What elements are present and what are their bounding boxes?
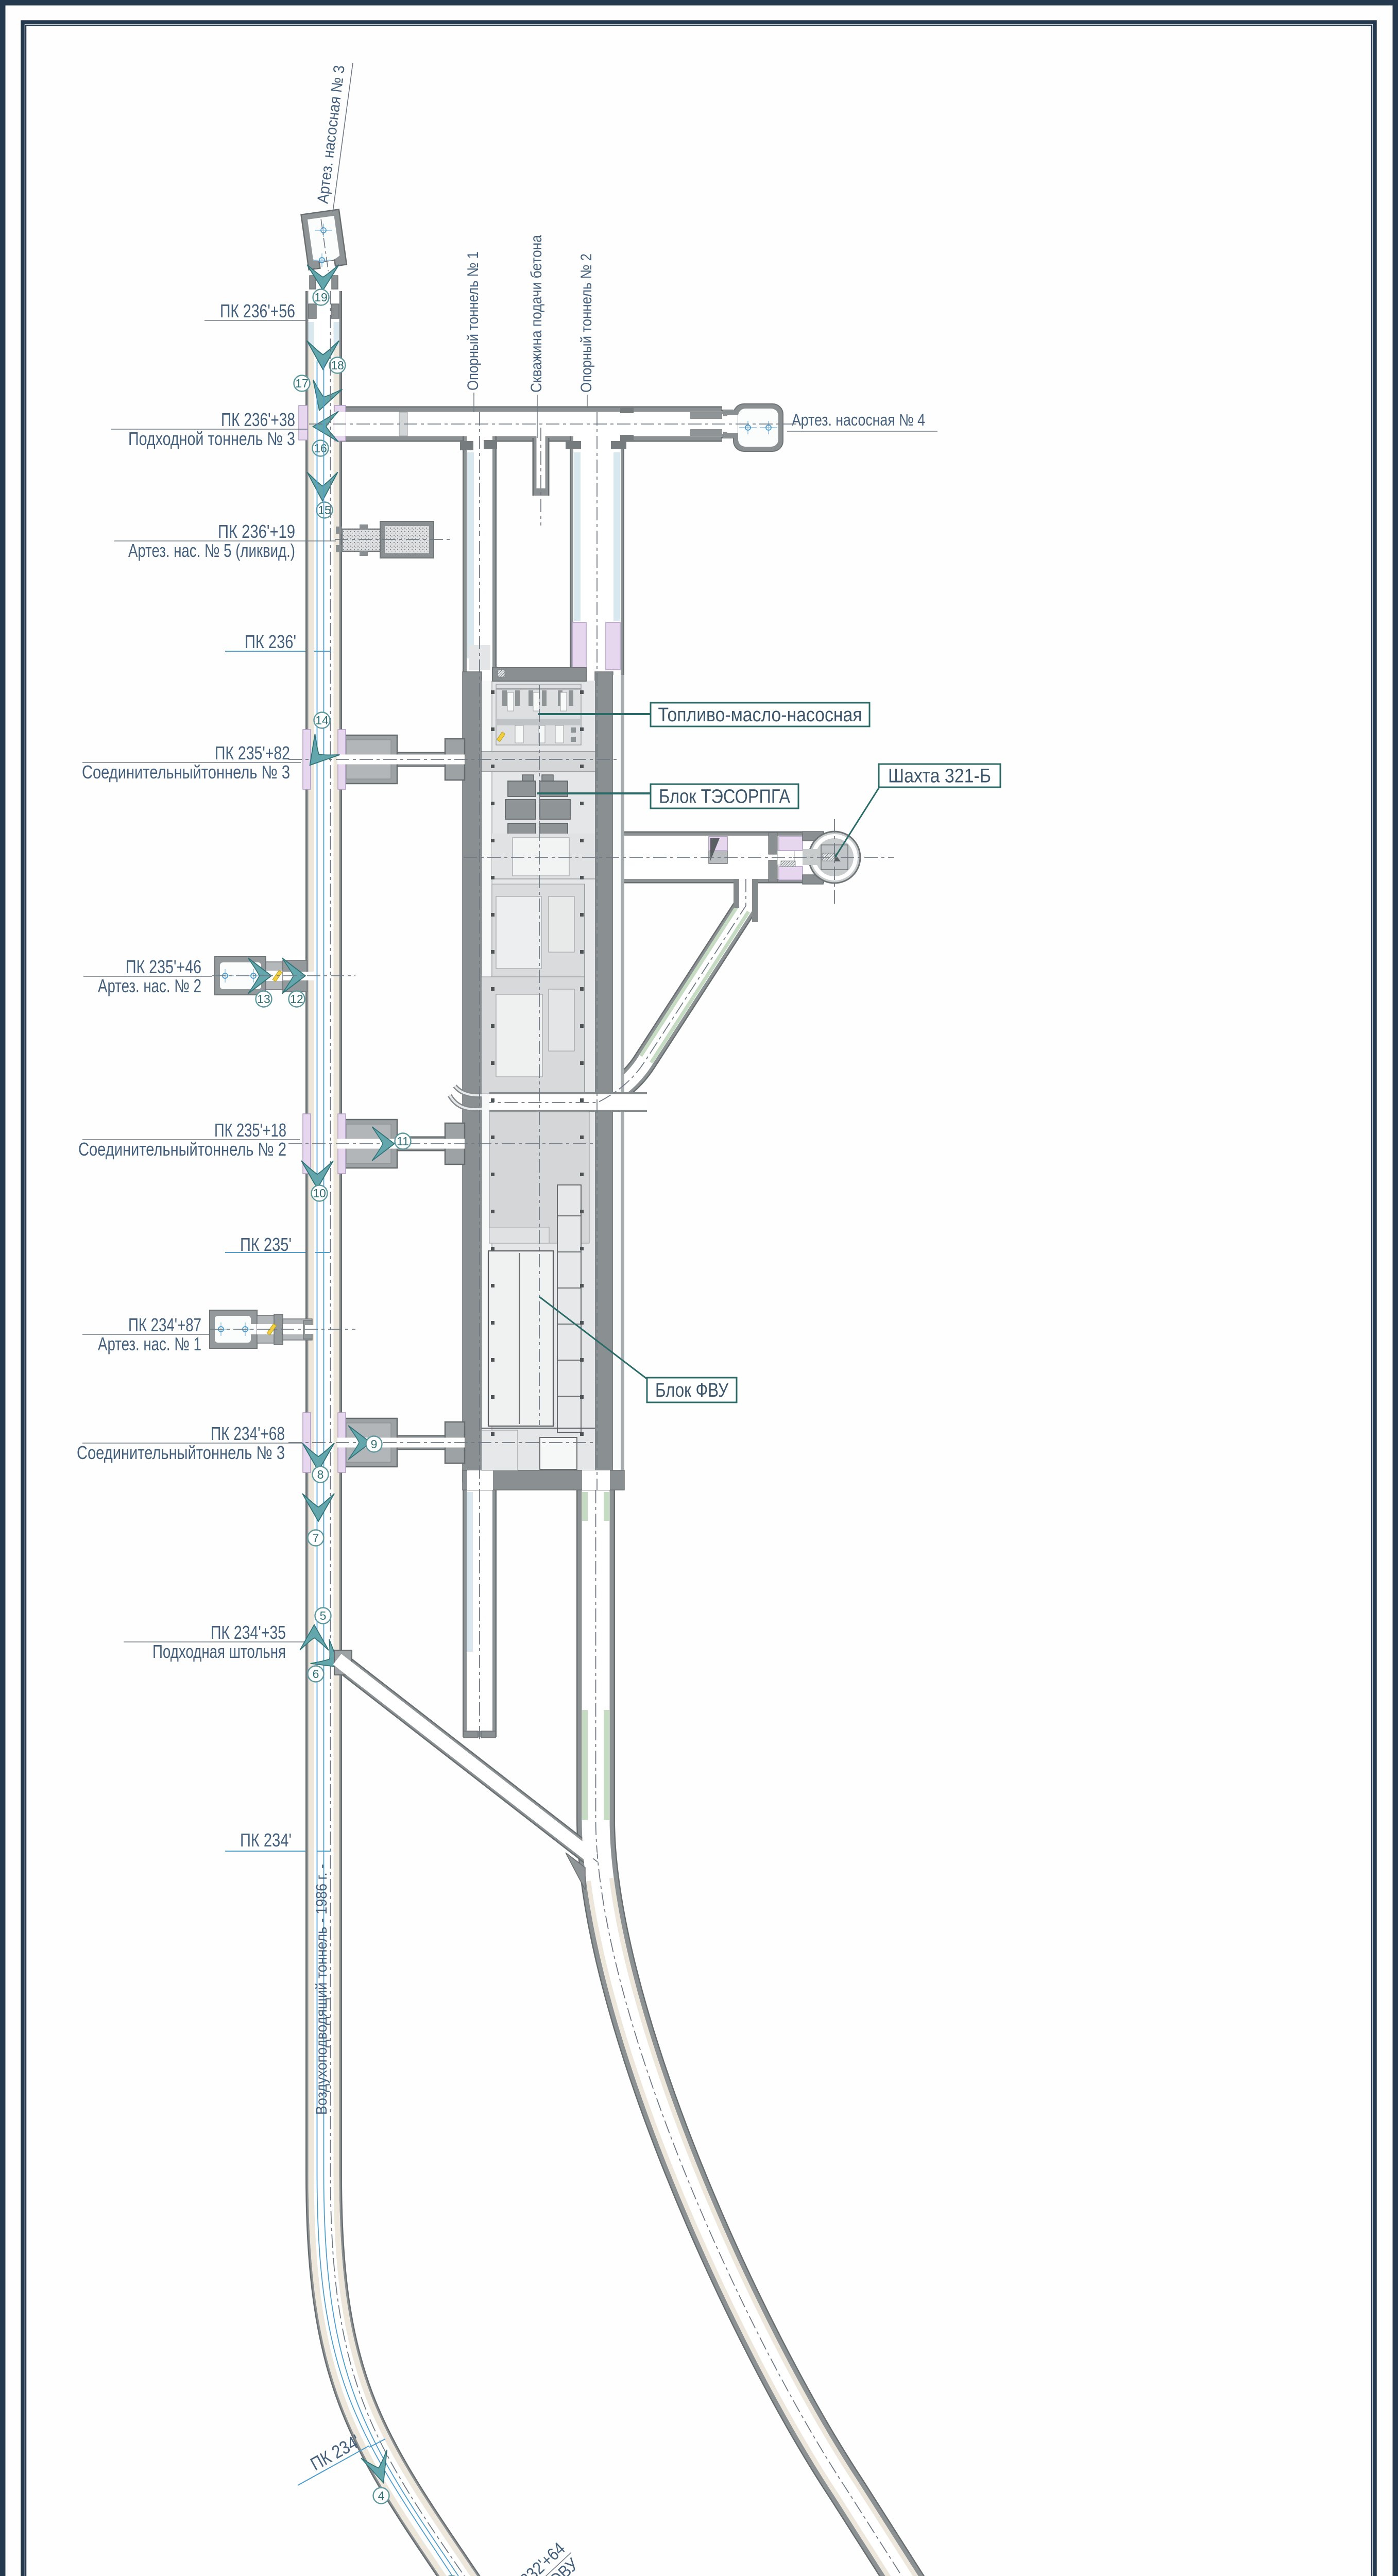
svg-text:7: 7 — [313, 1531, 319, 1545]
svg-text:ПК 234'+68: ПК 234'+68 — [211, 1423, 285, 1444]
svg-text:ПК 235': ПК 235' — [240, 1234, 292, 1255]
svg-text:14: 14 — [315, 714, 329, 727]
svg-text:Воздухоподводящий тоннель - 19: Воздухоподводящий тоннель - 1986 г. - — [313, 1864, 330, 2115]
svg-text:Скважина подачи бетона: Скважина подачи бетона — [528, 235, 545, 393]
svg-text:Артез. насосная № 4: Артез. насосная № 4 — [792, 411, 925, 429]
svg-text:ПК 234'+87: ПК 234'+87 — [128, 1314, 201, 1335]
svg-text:Опорный тоннель № 2: Опорный тоннель № 2 — [578, 253, 595, 393]
svg-text:Артез. нас. № 1: Артез. нас. № 1 — [98, 1333, 201, 1354]
svg-text:Опорный тоннель № 1: Опорный тоннель № 1 — [465, 251, 482, 391]
svg-text:Блок ФВУ: Блок ФВУ — [655, 1380, 729, 1401]
svg-text:18: 18 — [331, 359, 344, 372]
svg-text:ПК 236'+38: ПК 236'+38 — [221, 409, 295, 430]
svg-text:Соединительныйтоннель № 3: Соединительныйтоннель № 3 — [82, 761, 290, 783]
svg-text:Топливо-масло-насосная: Топливо-масло-насосная — [658, 704, 862, 726]
svg-text:16: 16 — [314, 442, 327, 455]
svg-text:13: 13 — [257, 992, 270, 1006]
svg-text:19: 19 — [314, 291, 328, 304]
svg-text:ПК 235'+18: ПК 235'+18 — [214, 1120, 286, 1141]
svg-text:Шахта 321-Б: Шахта 321-Б — [888, 766, 991, 787]
svg-text:10: 10 — [313, 1187, 326, 1200]
svg-text:4: 4 — [378, 2489, 385, 2502]
svg-text:ПК 235'+46: ПК 235'+46 — [126, 956, 201, 977]
svg-text:17: 17 — [295, 377, 309, 390]
svg-text:6: 6 — [313, 1667, 319, 1681]
svg-text:ПК 235'+82: ПК 235'+82 — [215, 742, 290, 764]
svg-text:ПК 234'+35: ПК 234'+35 — [211, 1622, 286, 1643]
svg-text:Подходной тоннель № 3: Подходной тоннель № 3 — [128, 428, 295, 449]
svg-text:11: 11 — [397, 1134, 409, 1148]
svg-text:ПК 234': ПК 234' — [240, 1829, 292, 1851]
svg-text:ПК 236'+19: ПК 236'+19 — [218, 521, 295, 542]
svg-text:8: 8 — [317, 1468, 324, 1481]
svg-text:Блок ТЭСОРПГА: Блок ТЭСОРПГА — [659, 786, 791, 808]
svg-text:ПК 236'+56: ПК 236'+56 — [220, 300, 295, 321]
svg-text:Соединительныйтоннель № 2: Соединительныйтоннель № 2 — [78, 1139, 286, 1160]
svg-text:5: 5 — [320, 1609, 327, 1622]
svg-text:Артез. нас. № 5 (ликвид.): Артез. нас. № 5 (ликвид.) — [128, 540, 295, 561]
svg-text:Соединительныйтоннель № 3: Соединительныйтоннель № 3 — [77, 1442, 285, 1463]
svg-text:Подходная штольня: Подходная штольня — [152, 1641, 286, 1662]
svg-text:9: 9 — [371, 1437, 378, 1451]
svg-text:Артез. нас. № 2: Артез. нас. № 2 — [98, 975, 201, 996]
svg-text:12: 12 — [290, 992, 303, 1006]
svg-text:15: 15 — [318, 503, 331, 517]
svg-text:ПК 236': ПК 236' — [245, 631, 296, 652]
